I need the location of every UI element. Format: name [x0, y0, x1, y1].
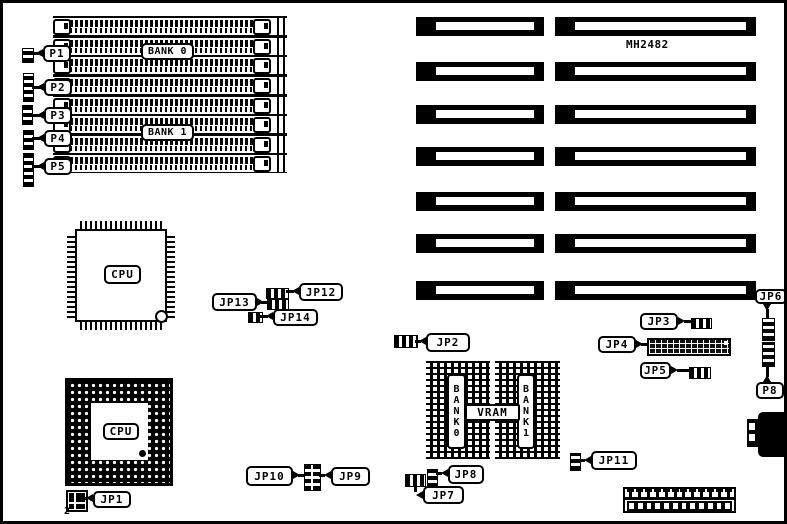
- simm-frame-bar: [277, 18, 279, 35]
- simm-contact-row: [60, 87, 253, 92]
- simm-frame-bar: [277, 136, 279, 153]
- label-jp2: JP2: [426, 333, 470, 352]
- slot-key: [436, 197, 534, 205]
- label-jp6: JP6: [755, 289, 787, 304]
- label-jp13: JP13: [212, 293, 257, 311]
- power-socket: [636, 501, 645, 511]
- callout-tail: [671, 366, 678, 374]
- slot-key: [436, 22, 534, 30]
- callout-tail: [257, 298, 264, 306]
- simm-latch-right: [253, 117, 271, 133]
- qfp-pins-left: [67, 234, 75, 318]
- power-pin: [707, 489, 714, 499]
- slot-key: [436, 110, 534, 118]
- power-pin: [627, 489, 634, 499]
- callout-line: [684, 320, 693, 323]
- qfp-pins-top: [80, 221, 165, 229]
- slot-key: [575, 110, 746, 118]
- power-socket: [723, 501, 732, 511]
- simm-frame-bar: [277, 38, 279, 55]
- callout-tail: [324, 471, 331, 479]
- bank1-label: BANK 1: [141, 124, 194, 141]
- callout-tail: [763, 304, 771, 311]
- expansion-slot: [555, 234, 756, 253]
- simm-contact-row: [60, 157, 253, 164]
- simm-latch-right: [253, 58, 271, 74]
- connector-p5: [23, 153, 34, 187]
- power-socket: [662, 501, 671, 511]
- power-pin-row: [625, 489, 734, 499]
- vram-label: VRAM: [465, 404, 520, 421]
- label-jp12: JP12: [299, 283, 343, 301]
- din-notch: [749, 434, 755, 441]
- simm-frame-bar: [283, 18, 285, 35]
- slot-key: [436, 152, 534, 160]
- power-socket: [627, 501, 636, 511]
- label-jp4: JP4: [598, 336, 636, 353]
- keyboard-din-connector: [758, 412, 787, 457]
- simm-frame-bar: [283, 116, 285, 133]
- expansion-slot: [555, 17, 756, 36]
- callout-line: [677, 369, 690, 372]
- power-socket: [680, 501, 689, 511]
- din-notch: [749, 423, 755, 430]
- pin1-indicator-dot: [139, 450, 146, 457]
- power-pin: [654, 489, 661, 499]
- callout-tail: [678, 317, 685, 325]
- label-p3: P3: [44, 107, 72, 124]
- jumper-jp11: [570, 453, 581, 471]
- slot-key: [575, 67, 746, 75]
- callout-tail: [37, 83, 44, 91]
- label-jp1: JP1: [93, 491, 131, 508]
- simm-contact-row: [60, 146, 253, 151]
- simm-frame-bar: [283, 155, 285, 172]
- expansion-slot: [416, 17, 544, 36]
- callout-tail: [441, 469, 448, 477]
- label-p2: P2: [44, 79, 72, 96]
- expansion-slot: [416, 147, 544, 166]
- callout-tail: [37, 162, 44, 170]
- callout-tail: [419, 337, 426, 345]
- power-socket: [688, 501, 697, 511]
- power-pin: [725, 489, 732, 499]
- simm-latch-right: [253, 78, 271, 94]
- qfp-pins-right: [167, 234, 175, 318]
- power-socket: [653, 501, 662, 511]
- power-pin: [636, 489, 643, 499]
- label-jp3: JP3: [640, 313, 678, 330]
- simm-slot: [53, 95, 287, 115]
- slot-key: [436, 67, 534, 75]
- jumper-jp9-jp10: [304, 464, 321, 491]
- label-jp5: JP5: [640, 362, 671, 379]
- simm-contact-row: [60, 20, 253, 27]
- simm-frame-bar: [283, 136, 285, 153]
- simm-contact-row: [60, 107, 253, 112]
- jumper-jp3: [691, 318, 712, 329]
- jumper-jp6: [762, 318, 775, 341]
- power-pin: [645, 489, 652, 499]
- pin1-indicator-circle: [155, 310, 168, 323]
- slot-key: [575, 286, 746, 294]
- simm-slot: [53, 153, 287, 173]
- simm-contact-row: [60, 79, 253, 86]
- connector-p4: [23, 130, 34, 150]
- simm-frame-bar: [283, 57, 285, 74]
- power-socket: [715, 501, 724, 511]
- expansion-slot: [555, 105, 756, 124]
- power-pin: [672, 489, 679, 499]
- slot-key: [575, 197, 746, 205]
- simm-slot: [53, 75, 287, 95]
- callout-tail: [37, 111, 44, 119]
- simm-contact-row: [60, 67, 253, 72]
- simm-slot: [53, 16, 287, 36]
- simm-contact-row: [60, 165, 253, 170]
- expansion-slot: [416, 281, 544, 300]
- label-jp11: JP11: [591, 451, 637, 470]
- callout-tail: [37, 134, 44, 142]
- power-pin: [663, 489, 670, 499]
- expansion-slot: [555, 147, 756, 166]
- expansion-slot: [555, 281, 756, 300]
- power-socket: [671, 501, 680, 511]
- simm-latch-right: [253, 156, 271, 172]
- callout-tail: [36, 49, 43, 57]
- connector-p8: [762, 342, 775, 367]
- pin-header-jp4: [647, 338, 731, 356]
- power-socket-row: [625, 500, 734, 511]
- expansion-slot: [416, 105, 544, 124]
- simm-frame-bar: [277, 155, 279, 172]
- simm-frame-bar: [277, 116, 279, 133]
- power-connector: [623, 487, 736, 513]
- slot-key: [575, 239, 746, 247]
- power-socket: [697, 501, 706, 511]
- simm-contact-row: [60, 28, 253, 33]
- label-jp8: JP8: [448, 465, 484, 484]
- power-socket: [645, 501, 654, 511]
- simm-frame-bar: [277, 97, 279, 114]
- callout-tail: [292, 287, 299, 295]
- simm-frame-bar: [283, 97, 285, 114]
- simm-contact-row: [60, 99, 253, 106]
- cpu-pga-label: CPU: [103, 423, 139, 440]
- slot-key: [575, 152, 746, 160]
- simm-frame-bar: [283, 38, 285, 55]
- callout-tail: [636, 340, 643, 348]
- simm-latch-right: [253, 19, 271, 35]
- expansion-slot: [555, 62, 756, 81]
- callout-tail: [266, 312, 273, 320]
- model-number: MH2482: [626, 38, 669, 51]
- connector-p1: [22, 48, 34, 63]
- simm-frame-bar: [277, 57, 279, 74]
- label-jp10: JP10: [246, 466, 293, 486]
- simm-contact-row: [60, 59, 253, 66]
- callout-tail: [763, 375, 771, 382]
- simm-frame-bar: [283, 77, 285, 94]
- label-p4: P4: [44, 130, 72, 147]
- slot-key: [575, 22, 746, 30]
- cpu-qfp-label: CPU: [104, 265, 141, 284]
- power-socket: [706, 501, 715, 511]
- simm-latch-left: [53, 19, 71, 35]
- bank0-label: BANK 0: [141, 43, 194, 60]
- label-jp7: JP7: [423, 486, 464, 504]
- label-p5: P5: [44, 158, 72, 175]
- simm-frame-bar: [277, 77, 279, 94]
- label-p8: P8: [756, 382, 784, 399]
- label-p1: P1: [43, 45, 71, 62]
- jp1-pin2-label: 2: [64, 506, 70, 517]
- vram-bank0-label: BANK0: [447, 374, 466, 449]
- jumper-jp5: [689, 367, 711, 379]
- motherboard-diagram: BANK 0 BANK 1 P1 P2 P3 P4 P5 MH2482 CPU: [0, 0, 787, 524]
- label-jp9: JP9: [331, 467, 370, 486]
- callout-tail: [416, 491, 423, 499]
- simm-latch-right: [253, 98, 271, 114]
- slot-key: [436, 239, 534, 247]
- power-pin: [716, 489, 723, 499]
- expansion-slot: [416, 62, 544, 81]
- expansion-slot: [416, 234, 544, 253]
- expansion-slot: [555, 192, 756, 211]
- simm-latch-right: [253, 137, 271, 153]
- slot-key: [436, 286, 534, 294]
- callout-tail: [293, 471, 300, 479]
- power-pin: [689, 489, 696, 499]
- callout-tail: [584, 456, 591, 464]
- power-pin: [680, 489, 687, 499]
- callout-tail: [86, 494, 93, 502]
- power-pin: [698, 489, 705, 499]
- simm-latch-right: [253, 39, 271, 55]
- qfp-pins-bottom: [80, 322, 165, 330]
- label-jp14: JP14: [273, 309, 318, 326]
- expansion-slot: [416, 192, 544, 211]
